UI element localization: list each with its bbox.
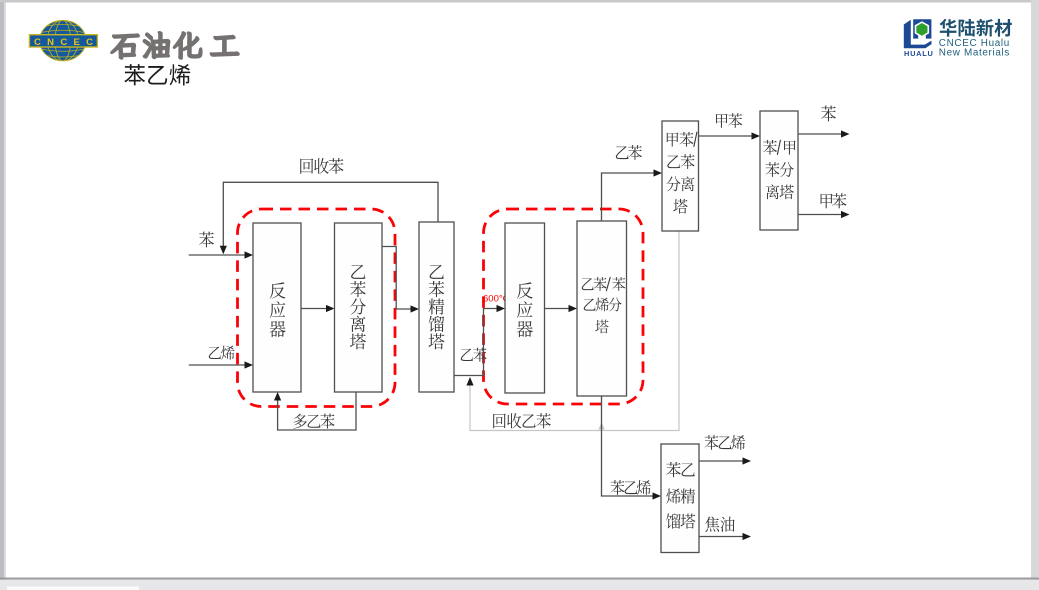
svg-text:New Materials: New Materials (939, 47, 1010, 58)
svg-text:HUALU: HUALU (904, 49, 933, 58)
